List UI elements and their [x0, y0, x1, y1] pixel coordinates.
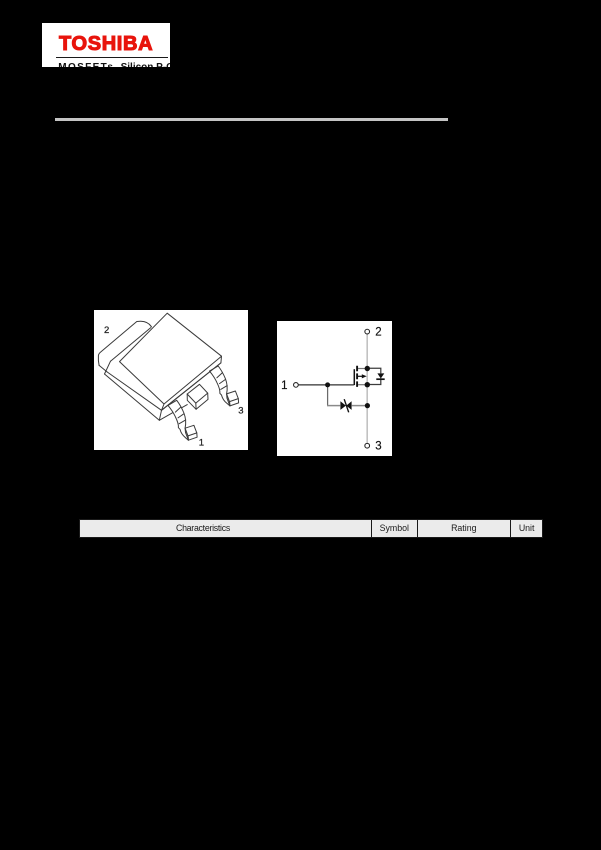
- svg-text:2: 2: [375, 327, 381, 339]
- svg-text:3: 3: [375, 441, 381, 453]
- svg-text:1: 1: [281, 380, 287, 392]
- svg-text:1: 1: [199, 437, 204, 448]
- svg-text:2: 2: [104, 325, 109, 336]
- svg-text:3: 3: [238, 406, 243, 417]
